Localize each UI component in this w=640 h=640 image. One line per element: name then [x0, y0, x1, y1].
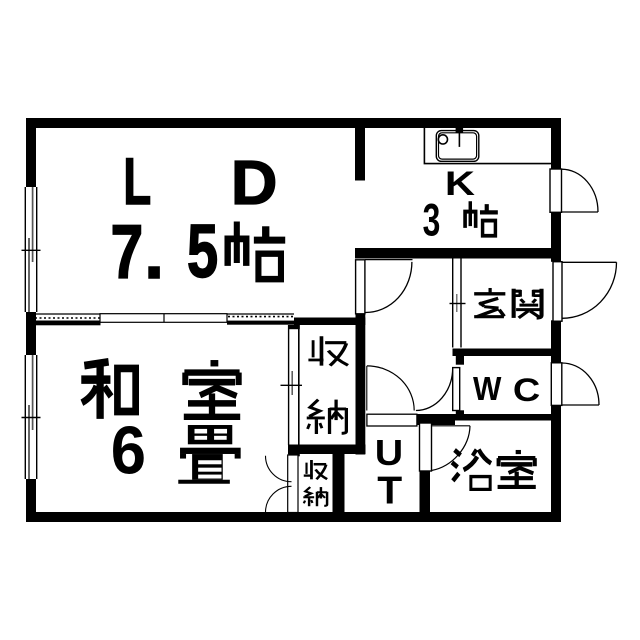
svg-text:T: T [377, 469, 402, 512]
svg-text:D: D [231, 149, 278, 217]
svg-text:3: 3 [423, 195, 441, 246]
svg-text:C: C [513, 373, 540, 409]
svg-text:U: U [375, 433, 403, 473]
svg-text:L: L [123, 145, 151, 218]
svg-text:7: 7 [111, 210, 144, 295]
svg-text:K: K [445, 164, 476, 203]
svg-text:.: . [144, 213, 164, 294]
svg-text:W: W [473, 369, 501, 407]
svg-text:5: 5 [187, 210, 218, 294]
svg-text:6: 6 [111, 411, 146, 488]
